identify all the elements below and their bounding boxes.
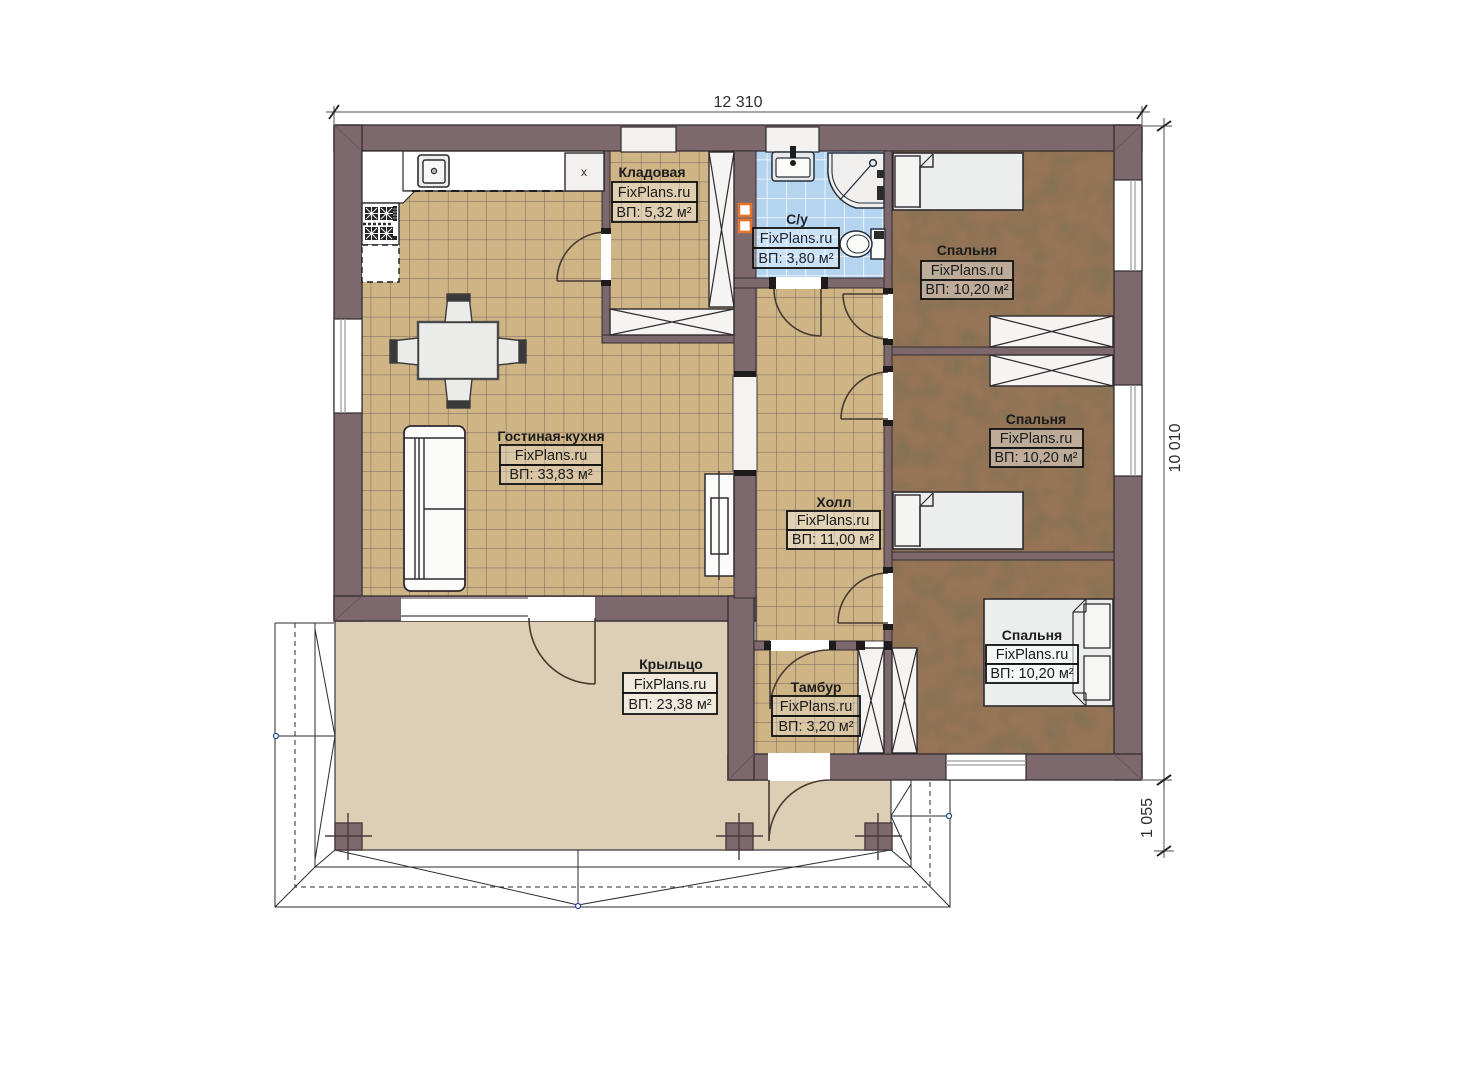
svg-text:1 055: 1 055 (1139, 798, 1156, 838)
svg-text:FixPlans.ru: FixPlans.ru (634, 677, 707, 693)
svg-text:С/у: С/у (786, 211, 808, 227)
svg-text:FixPlans.ru: FixPlans.ru (760, 231, 833, 247)
svg-text:FixPlans.ru: FixPlans.ru (618, 185, 691, 201)
svg-text:FixPlans.ru: FixPlans.ru (797, 513, 870, 529)
svg-text:Спальня: Спальня (937, 242, 997, 258)
svg-text:Кладовая: Кладовая (618, 164, 685, 180)
svg-text:Спальня: Спальня (1002, 627, 1062, 643)
svg-text:Холл: Холл (816, 494, 851, 510)
svg-text:12 310: 12 310 (714, 94, 763, 111)
svg-text:ВП: 10,20 м²: ВП: 10,20 м² (994, 450, 1077, 466)
svg-text:Тамбур: Тамбур (791, 679, 842, 695)
svg-text:FixPlans.ru: FixPlans.ru (931, 263, 1004, 279)
svg-text:FixPlans.ru: FixPlans.ru (515, 448, 588, 464)
svg-text:FixPlans.ru: FixPlans.ru (1000, 431, 1073, 447)
svg-text:ВП: 11,00 м²: ВП: 11,00 м² (792, 532, 874, 548)
svg-text:Гостиная-кухня: Гостиная-кухня (497, 428, 604, 444)
svg-text:Спальня: Спальня (1006, 411, 1066, 427)
svg-text:ВП: 3,80 м²: ВП: 3,80 м² (758, 251, 833, 267)
svg-text:ВП: 23,38 м²: ВП: 23,38 м² (628, 697, 711, 713)
svg-text:ВП: 5,32 м²: ВП: 5,32 м² (616, 205, 691, 221)
svg-text:ВП: 10,20 м²: ВП: 10,20 м² (990, 666, 1073, 682)
svg-text:x: x (581, 165, 587, 179)
svg-text:10 010: 10 010 (1167, 423, 1184, 472)
svg-text:Крыльцо: Крыльцо (639, 656, 703, 672)
svg-text:ВП: 3,20 м²: ВП: 3,20 м² (778, 719, 853, 735)
svg-text:FixPlans.ru: FixPlans.ru (996, 647, 1069, 663)
svg-text:FixPlans.ru: FixPlans.ru (780, 699, 853, 715)
svg-text:ВП: 10,20 м²: ВП: 10,20 м² (925, 282, 1008, 298)
svg-text:ВП: 33,83 м²: ВП: 33,83 м² (509, 467, 592, 483)
